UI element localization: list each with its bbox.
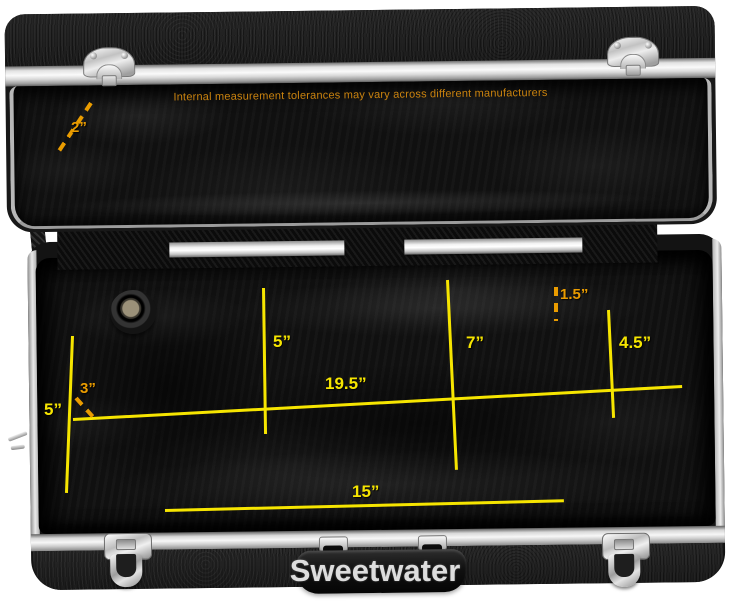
measure-label-accessory-depth: 1.5” — [560, 286, 588, 303]
measure-dash-bell-inset — [75, 397, 95, 418]
measurement-overlay: 2” 5” 3” 5” 19.5” 7” 4.5” 1.5” 15” — [0, 0, 750, 602]
measure-line-bell-height — [65, 336, 74, 493]
measure-line-body-width — [446, 280, 458, 470]
measure-label-lid-depth: 2” — [71, 119, 87, 136]
measure-label-body-width: 7” — [466, 333, 484, 353]
measure-label-bell-height: 5” — [44, 400, 62, 420]
measure-label-neck-width: 5” — [273, 332, 291, 352]
measure-line-overall-length — [73, 385, 682, 421]
measure-label-bell-inset: 3” — [80, 380, 96, 397]
measure-dash-accessory-depth — [554, 287, 558, 321]
measure-label-overall-length: 19.5” — [325, 374, 367, 394]
measure-label-bow-width: 4.5” — [619, 333, 651, 353]
measure-line-bow-width — [607, 310, 615, 418]
measure-line-neck-width — [262, 288, 267, 434]
product-photo: Internal measurement tolerances may vary… — [0, 0, 750, 602]
measure-label-lower-length: 15” — [352, 482, 379, 502]
